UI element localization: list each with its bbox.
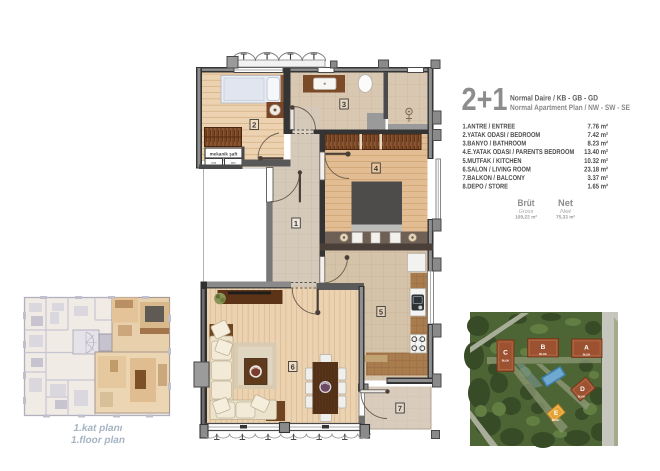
svg-text:5: 5 — [379, 307, 383, 316]
svg-text:1.65 m²: 1.65 m² — [587, 184, 608, 191]
svg-text:10.32 m²: 10.32 m² — [584, 158, 608, 165]
svg-text:7: 7 — [398, 404, 402, 413]
svg-text:BLOK: BLOK — [552, 419, 560, 422]
svg-text:Normal Apartment Plan / NW - S: Normal Apartment Plan / NW - SW - SE — [510, 103, 630, 112]
svg-text:7.76 m²: 7.76 m² — [587, 123, 608, 130]
svg-text:▪▪▪▪: ▪▪▪▪ — [211, 161, 217, 165]
svg-text:D: D — [580, 386, 585, 393]
svg-text:BLOK: BLOK — [502, 360, 510, 363]
svg-text:A: A — [584, 345, 589, 352]
svg-text:2+1: 2+1 — [462, 81, 508, 117]
svg-text:13.40 m²: 13.40 m² — [584, 149, 608, 156]
svg-text:Net: Net — [560, 209, 571, 215]
svg-text:1: 1 — [294, 219, 298, 228]
svg-text:1.ANTRE / ENTREE: 1.ANTRE / ENTREE — [463, 122, 516, 130]
svg-text:3.BANYO / BATHROOM: 3.BANYO / BATHROOM — [463, 140, 527, 148]
svg-text:75,33 m²: 75,33 m² — [556, 215, 575, 221]
svg-text:3: 3 — [342, 100, 346, 109]
svg-text:5.MUTFAK / KITCHEN: 5.MUTFAK / KITCHEN — [463, 157, 522, 165]
svg-text:BLOK: BLOK — [578, 395, 586, 398]
svg-text:BLOK: BLOK — [539, 353, 547, 356]
svg-text:2.YATAK ODASI / BEDROOM: 2.YATAK ODASI / BEDROOM — [463, 131, 541, 139]
svg-text:Net: Net — [558, 198, 574, 209]
svg-text:1.floor plan: 1.floor plan — [71, 435, 125, 446]
svg-text:2: 2 — [252, 120, 256, 129]
svg-text:109,22 m²: 109,22 m² — [515, 215, 537, 221]
svg-text:C: C — [503, 350, 508, 357]
svg-text:Normal Daire / KB - GB - GD: Normal Daire / KB - GB - GD — [510, 94, 598, 103]
svg-text:BLOK: BLOK — [583, 353, 591, 356]
svg-text:6.SALON / LIVING ROOM: 6.SALON / LIVING ROOM — [463, 165, 531, 173]
svg-text:E: E — [554, 410, 559, 417]
svg-text:1.kat planı: 1.kat planı — [74, 423, 123, 434]
svg-text:B: B — [541, 344, 546, 351]
svg-text:4.E.YATAK ODASI / PARENTS BEDR: 4.E.YATAK ODASI / PARENTS BEDROOM — [463, 148, 575, 156]
svg-text:8.23 m²: 8.23 m² — [587, 141, 608, 148]
svg-text:mekanik şaft: mekanik şaft — [210, 151, 238, 156]
svg-text:7.BALKON / BALCONY: 7.BALKON / BALCONY — [463, 174, 526, 182]
svg-text:Brüt: Brüt — [518, 198, 536, 209]
svg-text:6: 6 — [291, 362, 295, 371]
svg-text:▪▪▪▪: ▪▪▪▪ — [231, 161, 237, 165]
svg-text:3.37 m²: 3.37 m² — [587, 175, 608, 182]
svg-text:8.DEPO / STORE: 8.DEPO / STORE — [463, 183, 509, 191]
svg-text:7.42 m²: 7.42 m² — [587, 132, 608, 139]
svg-text:23.18 m²: 23.18 m² — [584, 166, 608, 173]
svg-text:Gross: Gross — [519, 208, 534, 215]
